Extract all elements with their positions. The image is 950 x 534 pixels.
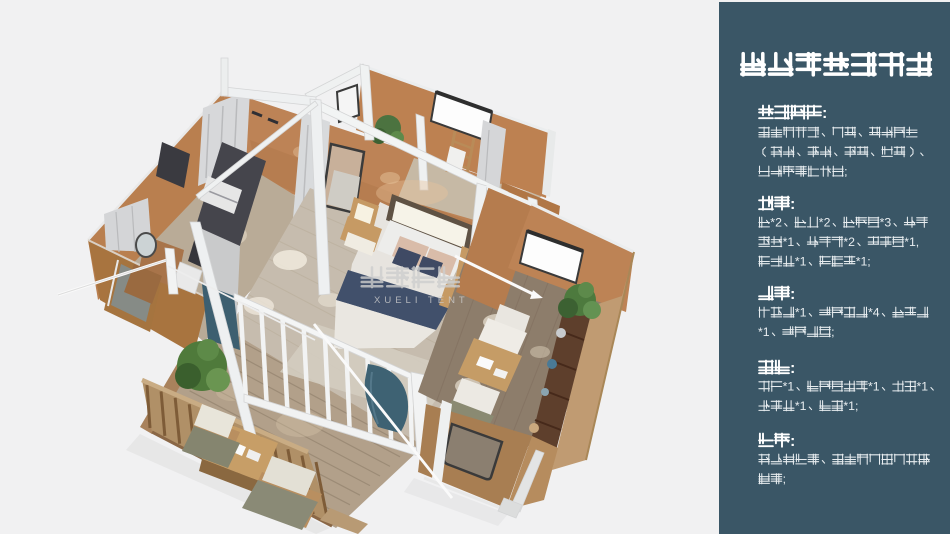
svg-text:*1;: *1; xyxy=(856,255,871,269)
svg-text:*2: *2 xyxy=(770,216,782,230)
svg-text:*1: *1 xyxy=(795,399,807,413)
svg-text:;: ; xyxy=(844,165,847,179)
svg-text:*2: *2 xyxy=(819,216,831,230)
svg-text:*2: *2 xyxy=(843,235,855,249)
svg-text:*1: *1 xyxy=(758,325,770,339)
svg-text::: : xyxy=(790,196,795,213)
svg-text:*1: *1 xyxy=(868,380,880,394)
svg-text:*1: *1 xyxy=(783,235,795,249)
svg-text:*1: *1 xyxy=(795,306,807,320)
svg-text:XUELI TENT: XUELI TENT xyxy=(374,295,469,306)
svg-text:*1: *1 xyxy=(917,380,929,394)
svg-text::: : xyxy=(790,360,795,377)
svg-text:*1: *1 xyxy=(783,380,795,394)
svg-text:;: ; xyxy=(783,472,786,486)
svg-text::: : xyxy=(790,433,795,450)
svg-text:*4: *4 xyxy=(868,306,880,320)
svg-text:*1,: *1, xyxy=(904,235,919,249)
svg-text:*1;: *1; xyxy=(843,399,858,413)
svg-text::: : xyxy=(790,286,795,303)
svg-text:*3: *3 xyxy=(880,216,892,230)
svg-text::: : xyxy=(822,105,827,122)
svg-text:*1: *1 xyxy=(795,255,807,269)
svg-text:;: ; xyxy=(831,325,834,339)
